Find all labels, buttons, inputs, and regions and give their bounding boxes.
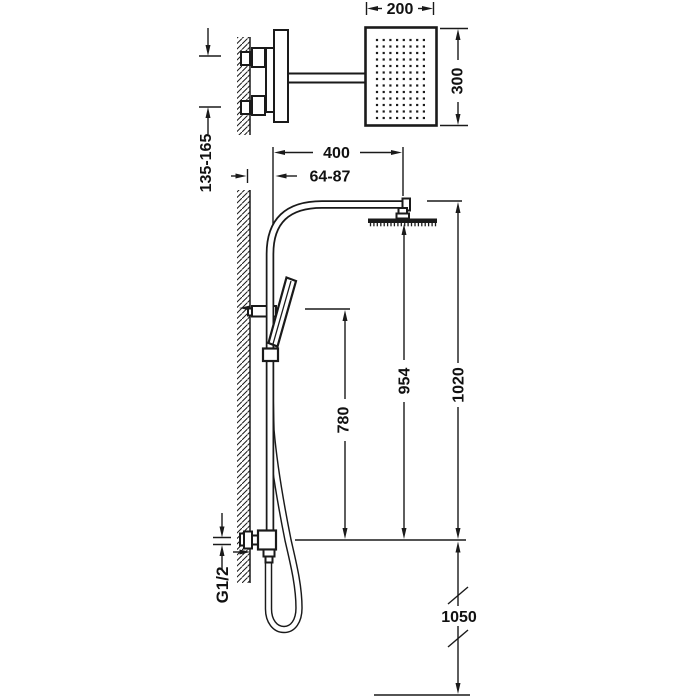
dim-64-87-label: 64-87 xyxy=(310,169,351,186)
dimension-outlet-floor: 1050 xyxy=(441,542,477,695)
dimension-arm-height: 1020 xyxy=(427,201,468,539)
dimension-head-width: 200 xyxy=(367,1,434,18)
slider-bracket xyxy=(263,349,278,362)
head-face-bar xyxy=(368,219,437,224)
wall-inlet-stub-bottom xyxy=(241,101,250,114)
technical-drawing-page: 200 300 135-165 400 64-87 xyxy=(0,0,700,700)
shower-column-dimension-drawing: 200 300 135-165 400 64-87 xyxy=(0,0,700,700)
elbow-body xyxy=(258,531,276,550)
rain-head-side-view xyxy=(368,208,437,226)
dim-400-label: 400 xyxy=(323,145,350,162)
wall-section-lower xyxy=(237,190,250,583)
shower-column xyxy=(270,199,410,533)
inlet-connector-top xyxy=(252,48,265,67)
dim-g12-label: G1/2 xyxy=(213,567,232,604)
dim-954-label: 954 xyxy=(397,368,414,395)
dim-780-label: 780 xyxy=(336,407,353,434)
dim-1020-label: 1020 xyxy=(451,367,468,403)
dimension-inlet-spacing: 135-165 xyxy=(198,28,221,192)
dimension-head-height: 300 xyxy=(440,29,468,126)
hose-connector xyxy=(264,550,275,557)
dim-300-label: 300 xyxy=(450,68,467,95)
nozzle-ticks xyxy=(371,223,436,226)
inlet-connector-bottom xyxy=(252,96,265,115)
shower-head-plan-view xyxy=(366,28,437,126)
valve-plate xyxy=(266,48,274,112)
wall-inlet-stub-top xyxy=(241,52,250,65)
dim-1050-label: 1050 xyxy=(441,609,477,626)
outlet-flange xyxy=(244,532,252,549)
dimension-head-face-height: 954 xyxy=(397,224,414,539)
valve-body xyxy=(274,30,288,122)
dim-200-label: 200 xyxy=(387,1,414,18)
dimension-wall-offset: 64-87 xyxy=(231,169,351,186)
valve-assembly-top-view xyxy=(241,30,365,122)
dim-135-165-label: 135-165 xyxy=(198,134,215,193)
dimension-holder-height: 780 xyxy=(305,309,353,539)
